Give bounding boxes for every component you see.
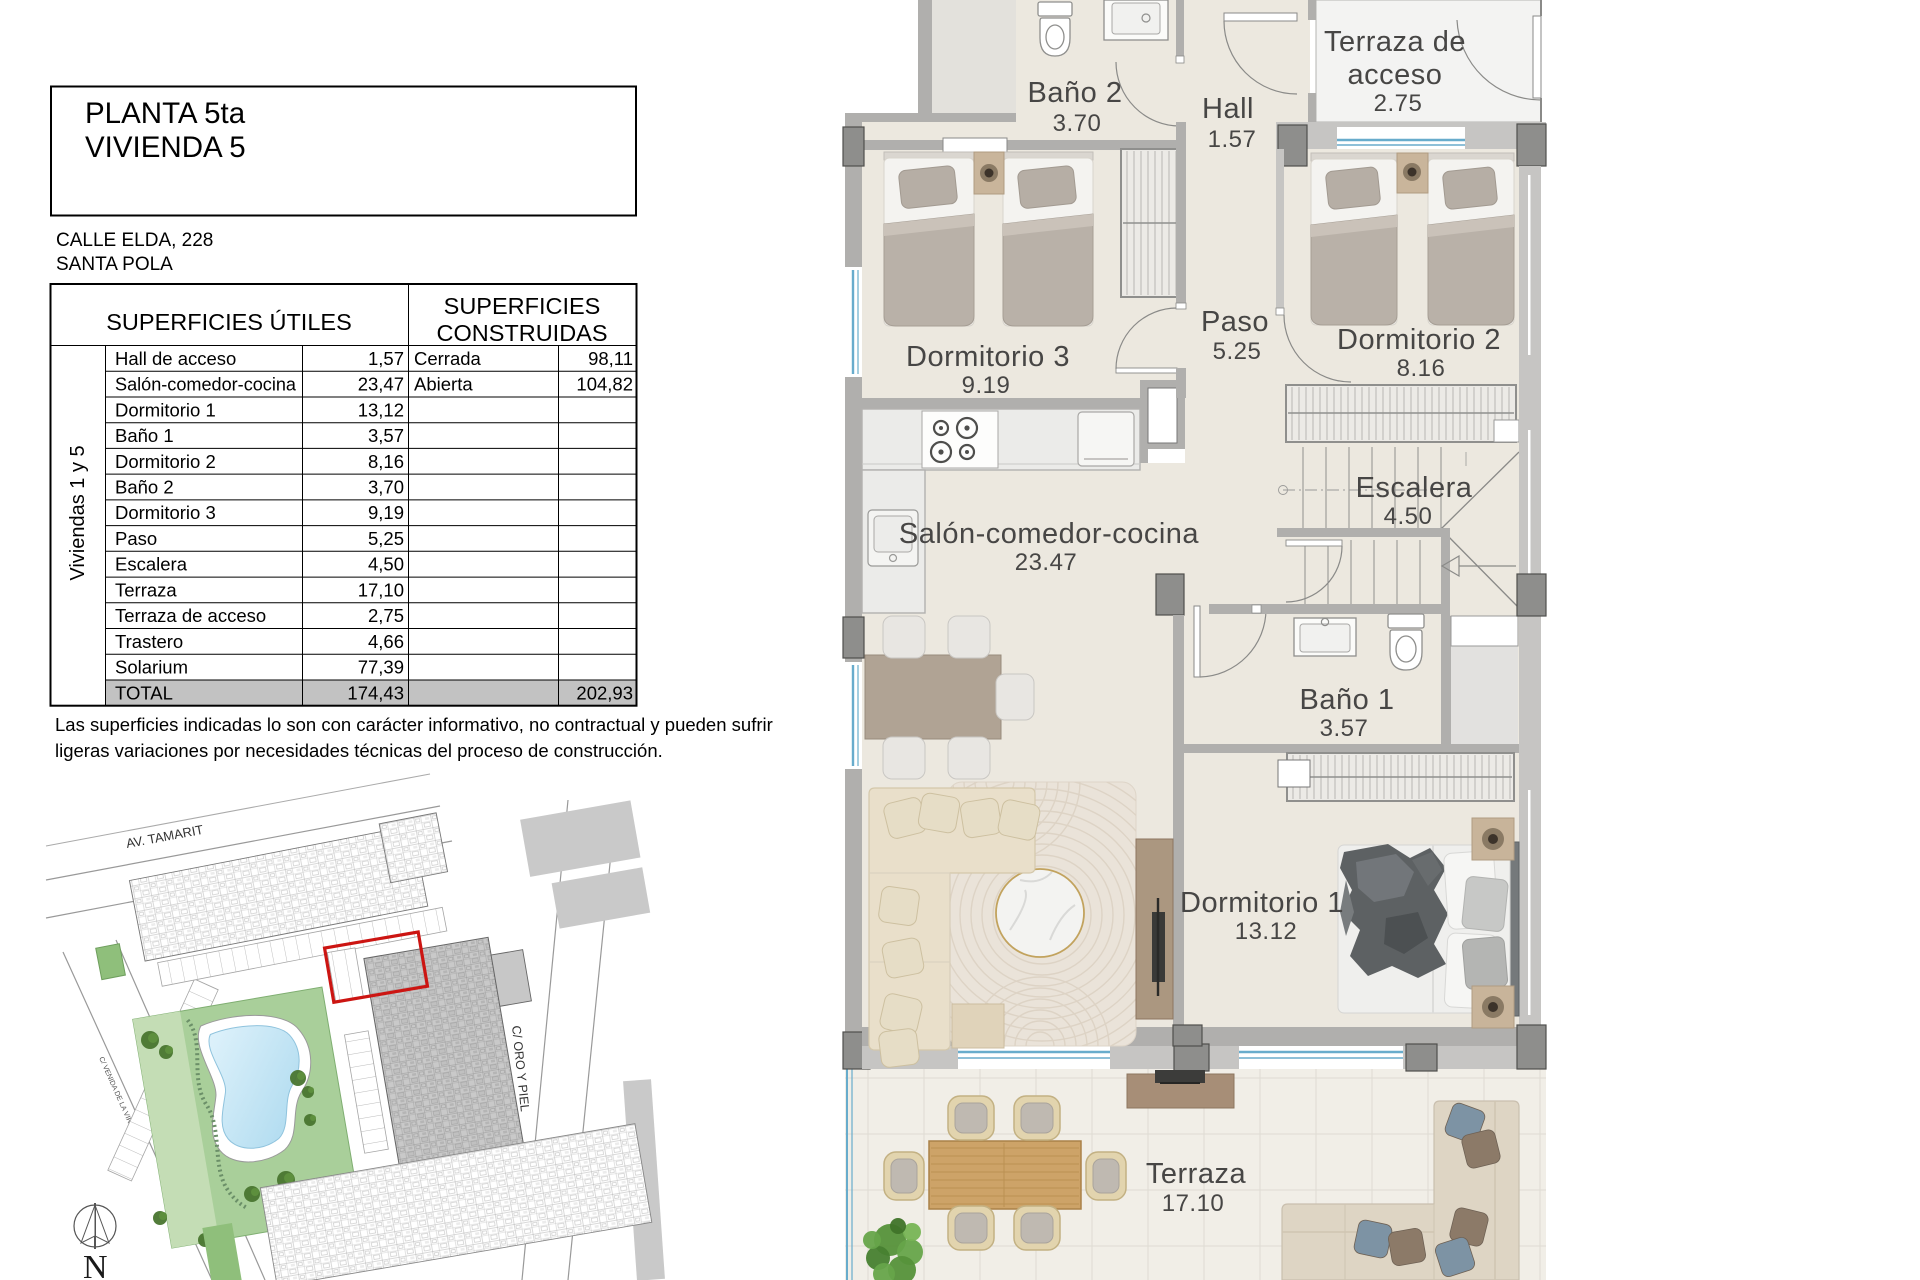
svg-text:4,66: 4,66 (368, 631, 404, 652)
svg-text:Cerrada: Cerrada (414, 348, 482, 369)
svg-text:104,82: 104,82 (576, 374, 633, 395)
svg-text:5,25: 5,25 (368, 528, 404, 549)
svg-text:8,16: 8,16 (368, 451, 404, 472)
svg-text:Terraza: Terraza (115, 579, 177, 600)
svg-text:Hall de acceso: Hall de acceso (115, 348, 236, 369)
svg-text:Escalera: Escalera (1356, 472, 1473, 504)
svg-text:N: N (83, 1249, 108, 1280)
svg-text:Salón-comedor-cocina: Salón-comedor-cocina (899, 518, 1200, 550)
svg-text:Dormitorio 3: Dormitorio 3 (115, 502, 216, 523)
svg-text:17,10: 17,10 (358, 579, 404, 600)
svg-text:Terraza de acceso: Terraza de acceso (115, 605, 266, 626)
svg-text:SANTA POLA: SANTA POLA (56, 254, 173, 275)
svg-text:Baño 1: Baño 1 (1300, 684, 1395, 716)
svg-text:Solarium: Solarium (115, 657, 188, 678)
svg-text:Terraza de: Terraza de (1324, 26, 1466, 58)
svg-text:23,47: 23,47 (358, 374, 404, 395)
svg-text:2.75: 2.75 (1374, 90, 1423, 117)
svg-text:Paso: Paso (115, 528, 157, 549)
svg-text:2,75: 2,75 (368, 605, 404, 626)
svg-text:Paso: Paso (1201, 306, 1269, 338)
svg-text:TOTAL: TOTAL (115, 682, 173, 703)
svg-text:Viviendas 1 y 5: Viviendas 1 y 5 (67, 445, 89, 580)
svg-text:174,43: 174,43 (347, 682, 404, 703)
svg-text:PLANTA 5ta: PLANTA 5ta (85, 97, 246, 130)
svg-text:Terraza: Terraza (1146, 1158, 1247, 1190)
svg-text:13,12: 13,12 (358, 399, 404, 420)
svg-text:Trastero: Trastero (115, 631, 183, 652)
svg-text:Baño 1: Baño 1 (115, 425, 174, 446)
svg-text:3,70: 3,70 (368, 477, 404, 498)
svg-text:13.12: 13.12 (1235, 918, 1298, 945)
svg-text:Hall: Hall (1202, 93, 1254, 125)
svg-text:CALLE ELDA, 228: CALLE ELDA, 228 (56, 230, 213, 251)
svg-text:3,57: 3,57 (368, 425, 404, 446)
svg-text:Dormitorio 1: Dormitorio 1 (1180, 887, 1344, 919)
svg-text:17.10: 17.10 (1162, 1190, 1225, 1217)
svg-text:Abierta: Abierta (414, 374, 473, 395)
svg-text:SUPERFICIES: SUPERFICIES (444, 293, 601, 319)
svg-text:Las superficies indicadas lo s: Las superficies indicadas lo son con car… (55, 714, 773, 735)
svg-text:4.50: 4.50 (1384, 503, 1433, 530)
svg-text:Baño 2: Baño 2 (1028, 77, 1123, 109)
svg-text:VIVIENDA 5: VIVIENDA 5 (85, 131, 246, 164)
svg-text:Dormitorio 1: Dormitorio 1 (115, 399, 216, 420)
svg-text:Escalera: Escalera (115, 554, 188, 575)
svg-text:3.57: 3.57 (1320, 715, 1369, 742)
svg-text:5.25: 5.25 (1213, 338, 1262, 365)
svg-text:1,57: 1,57 (368, 348, 404, 369)
svg-text:ligeras variaciones por necesi: ligeras variaciones por necesidades técn… (55, 740, 663, 761)
svg-text:98,11: 98,11 (588, 348, 633, 369)
svg-text:4,50: 4,50 (368, 554, 404, 575)
svg-text:3.70: 3.70 (1053, 110, 1102, 137)
svg-text:1.57: 1.57 (1208, 126, 1257, 153)
svg-text:Dormitorio 3: Dormitorio 3 (906, 341, 1070, 373)
svg-text:SUPERFICIES ÚTILES: SUPERFICIES ÚTILES (106, 309, 352, 335)
svg-text:202,93: 202,93 (576, 682, 633, 703)
svg-text:77,39: 77,39 (358, 657, 404, 678)
svg-text:Salón-comedor-cocina: Salón-comedor-cocina (115, 374, 297, 395)
svg-text:CONSTRUIDAS: CONSTRUIDAS (436, 320, 607, 346)
svg-text:9.19: 9.19 (962, 372, 1011, 399)
svg-text:9,19: 9,19 (368, 502, 404, 523)
svg-text:Baño 2: Baño 2 (115, 477, 174, 498)
svg-text:8.16: 8.16 (1397, 355, 1446, 382)
svg-text:Dormitorio 2: Dormitorio 2 (115, 451, 216, 472)
svg-text:acceso: acceso (1348, 59, 1443, 91)
svg-text:Dormitorio 2: Dormitorio 2 (1337, 324, 1501, 356)
svg-text:23.47: 23.47 (1015, 549, 1078, 576)
svg-text:AV. TAMARIT: AV. TAMARIT (125, 822, 205, 851)
